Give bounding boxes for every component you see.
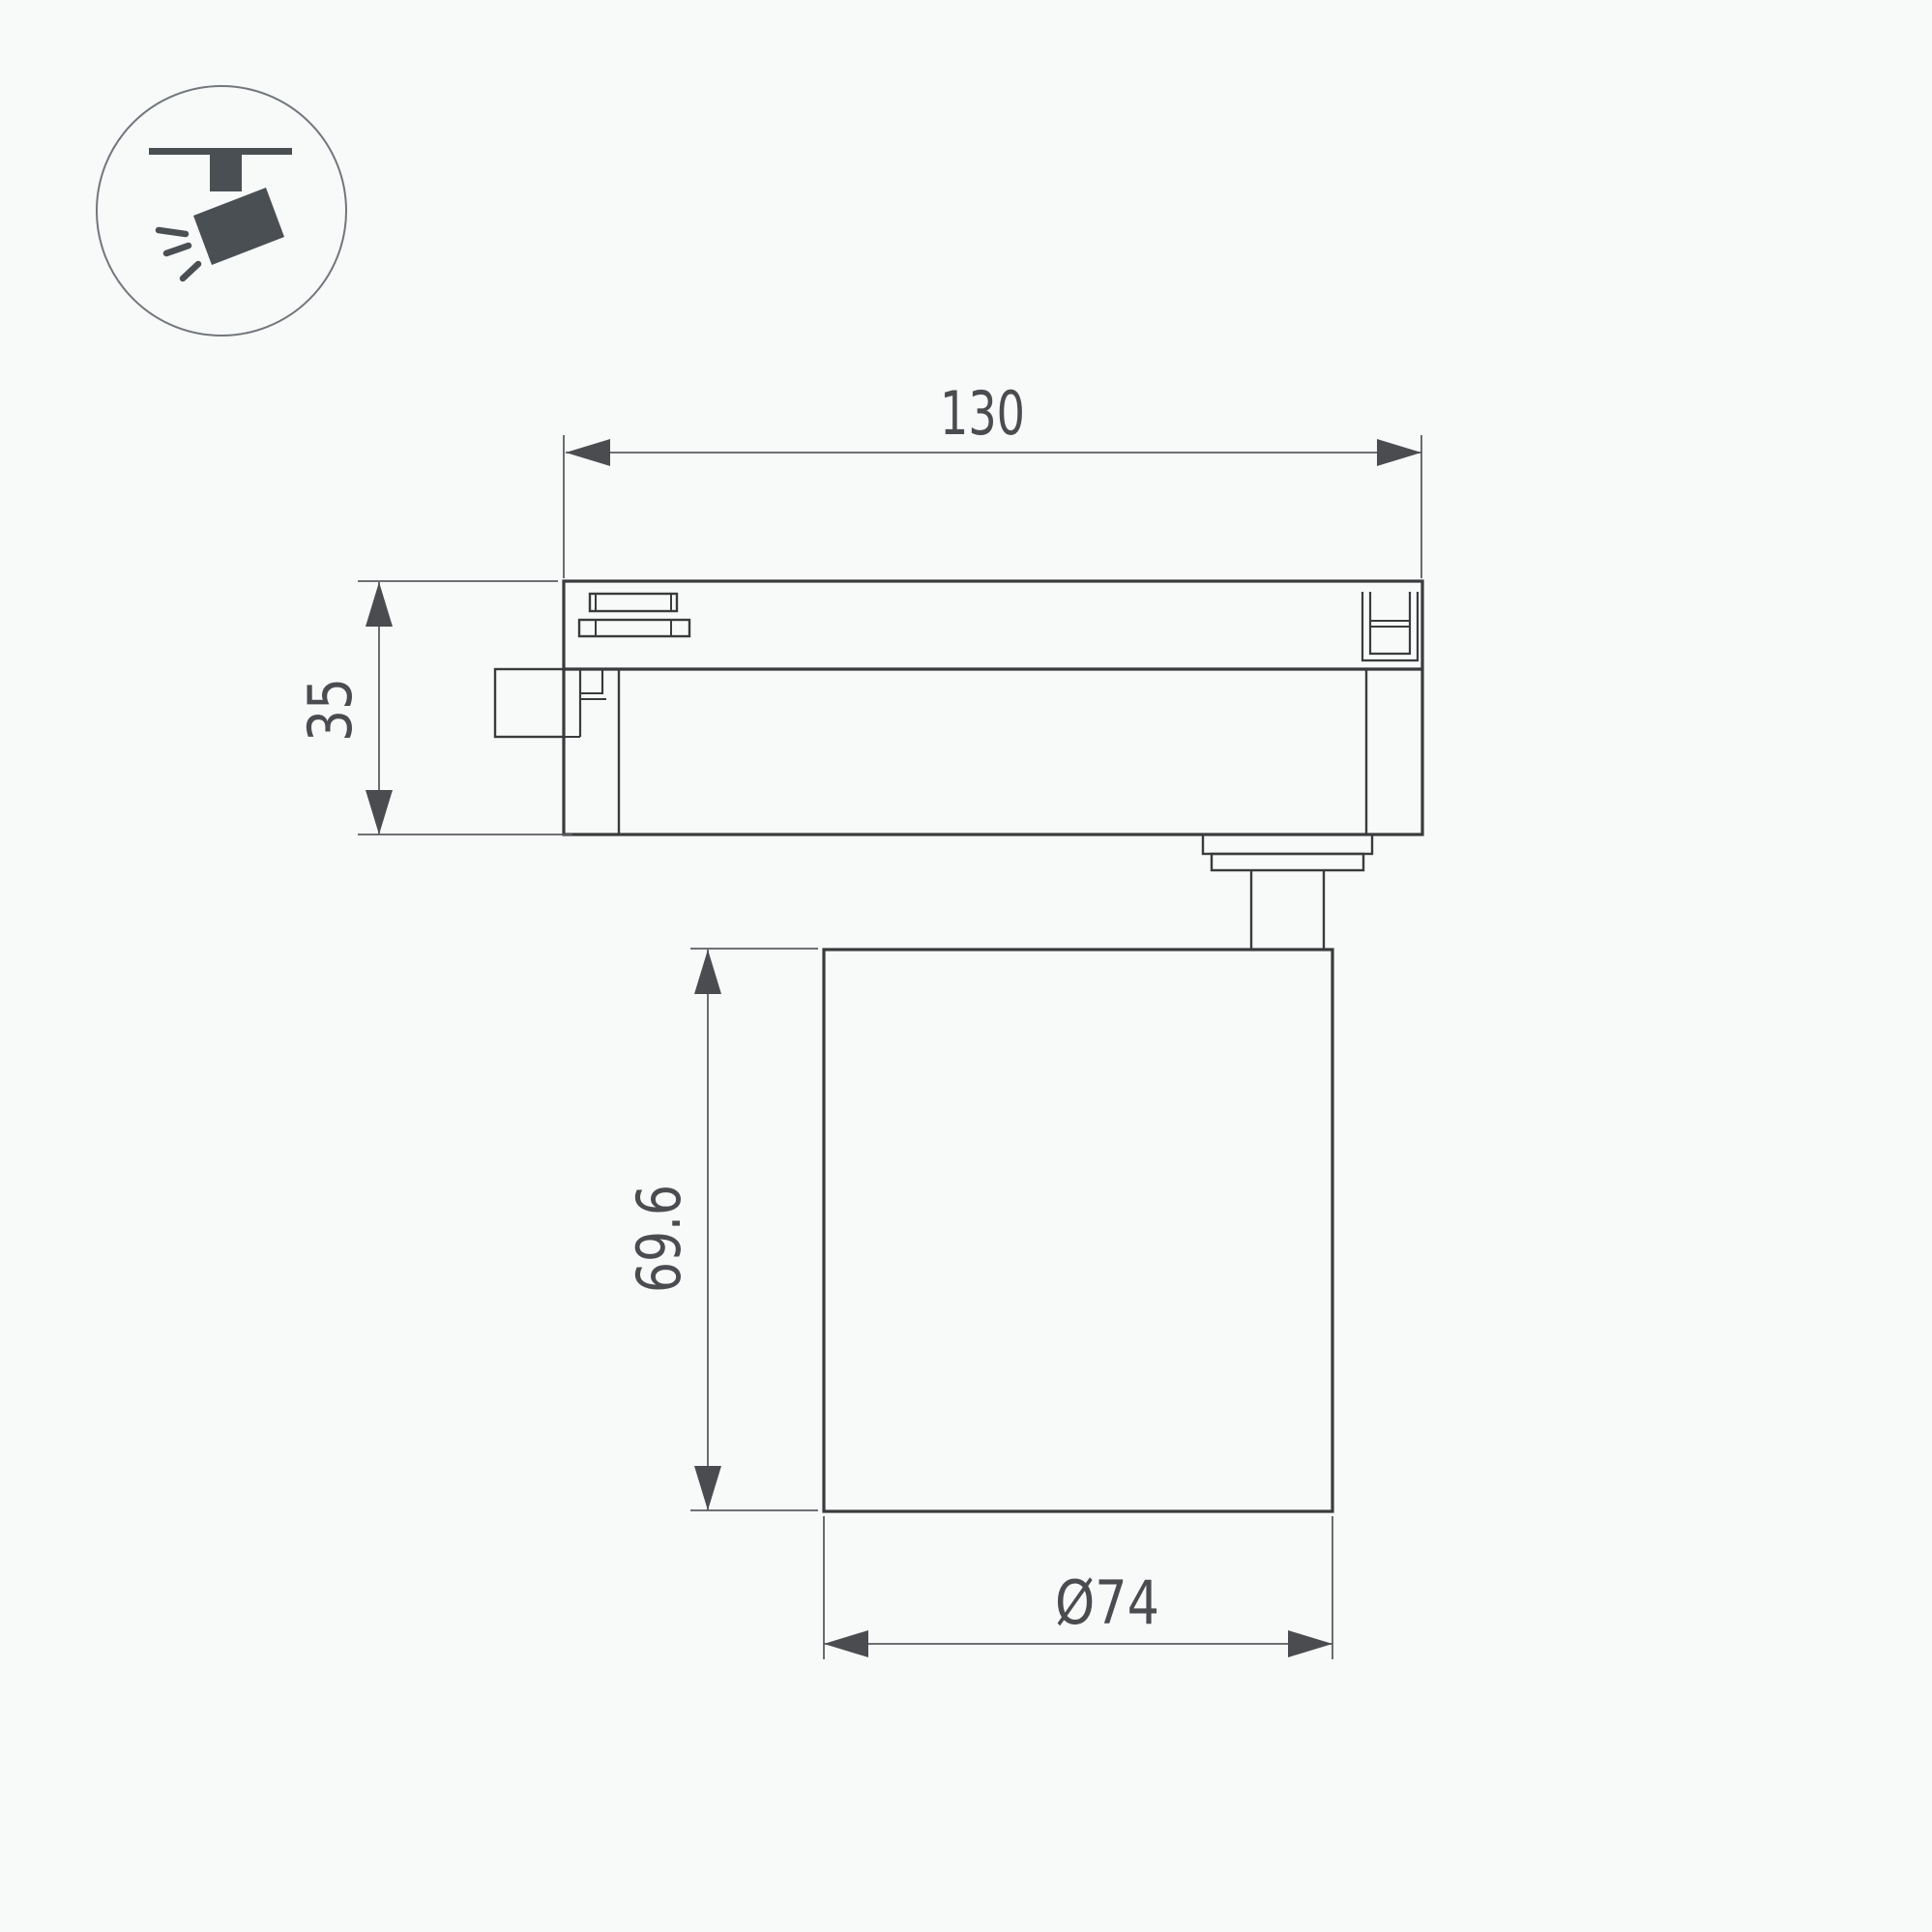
arrowhead-up-icon (366, 582, 393, 627)
adapter-outline (564, 581, 1422, 834)
page: 130 35 69.6 Ø74 (0, 0, 1932, 1932)
dimension-label-body-diameter: Ø74 (1055, 1567, 1159, 1638)
adapter-contact-hook (1362, 592, 1418, 660)
lamp-body-outline (824, 950, 1332, 1511)
track-adapter (495, 581, 1422, 834)
arrowhead-right-icon (1377, 439, 1421, 466)
track-light-icon (97, 86, 346, 336)
dimension-label-width: 130 (940, 378, 1025, 449)
swivel-joint (1203, 834, 1372, 950)
adapter-lock-lever (495, 669, 564, 737)
dimension-adapter-width: 130 (564, 378, 1421, 578)
joint-flange-lower (1212, 854, 1363, 870)
adapter-contact-slot-upper (590, 594, 677, 611)
arrowhead-right-icon (1288, 1630, 1332, 1657)
arrowhead-down-icon (366, 790, 393, 834)
lamp-body (824, 950, 1332, 1511)
icon-track-bar (149, 148, 292, 155)
arrowhead-left-icon (566, 439, 610, 466)
dimension-body-height: 69.6 (624, 949, 818, 1510)
arrowhead-up-icon (694, 950, 721, 994)
dimension-adapter-height: 35 (295, 581, 572, 834)
dimension-label-body-height: 69.6 (624, 1185, 694, 1293)
icon-light-rays (159, 230, 198, 278)
adapter-contact-slot-lower (579, 620, 689, 636)
icon-spotlight-head (193, 188, 284, 265)
dimension-body-diameter: Ø74 (824, 1516, 1332, 1659)
icon-mount-stem (210, 154, 242, 191)
arrowhead-down-icon (694, 1466, 721, 1510)
dimension-label-adapter-height: 35 (295, 678, 366, 742)
joint-flange-upper (1203, 834, 1372, 854)
adapter-latch-detail (564, 669, 619, 834)
technical-drawing-canvas: 130 35 69.6 Ø74 (0, 0, 1932, 1932)
arrowhead-left-icon (824, 1630, 868, 1657)
